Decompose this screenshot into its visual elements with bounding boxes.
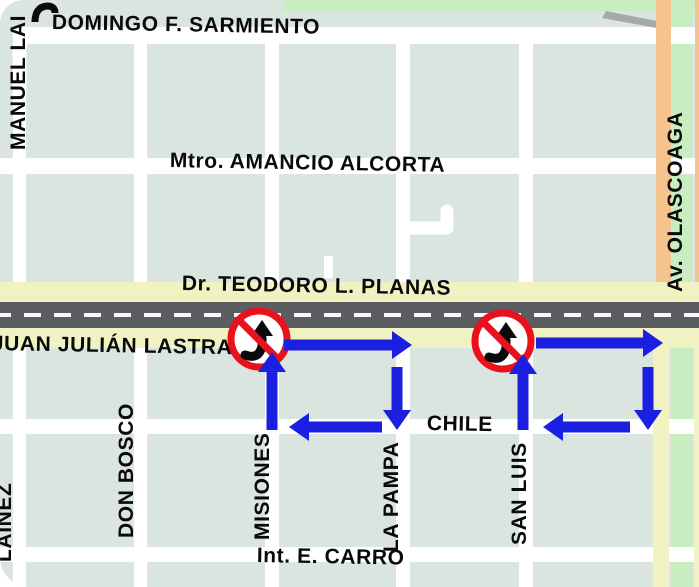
street-label-san-luis: SAN LUIS [509,442,530,545]
street-label-olascoaga: Av. OLASCOAGA [665,112,686,292]
traffic-map-screenshot: DOMINGO F. SARMIENTO Mtro. AMANCIO ALCOR… [0,0,699,587]
avenue-olascoaga-south-sliver [694,336,699,587]
median-gap-sarmiento [671,27,692,44]
street-label-la-pampa: LA PAMPA [381,441,402,552]
map: DOMINGO F. SARMIENTO Mtro. AMANCIO ALCOR… [0,0,699,587]
street-label-lainez: LAINEZ [0,483,15,562]
street-label-don-bosco: DON BOSCO [116,403,137,538]
median-gap-chile [671,419,692,434]
avenue-olascoaga-south [653,336,669,587]
street-label-chile: CHILE [427,413,493,435]
street-label-sarmiento: DOMINGO F. SARMIENTO [52,12,321,38]
median-gap-carro [671,547,692,562]
street-label-lastra: JUAN JULIÁN LASTRA [0,333,233,358]
street-label-alcorta: Mtro. AMANCIO ALCORTA [170,150,446,176]
avenue-olascoaga-north-sliver [695,0,699,302]
street-label-manuel-lainez: MANUEL LAI [8,15,29,150]
street-label-misiones: MISIONES [252,433,273,540]
no-turn-sign-icon [231,311,287,367]
green-strip-top [283,0,699,11]
street-label-planas: Dr. TEODORO L. PLANAS [182,273,452,299]
